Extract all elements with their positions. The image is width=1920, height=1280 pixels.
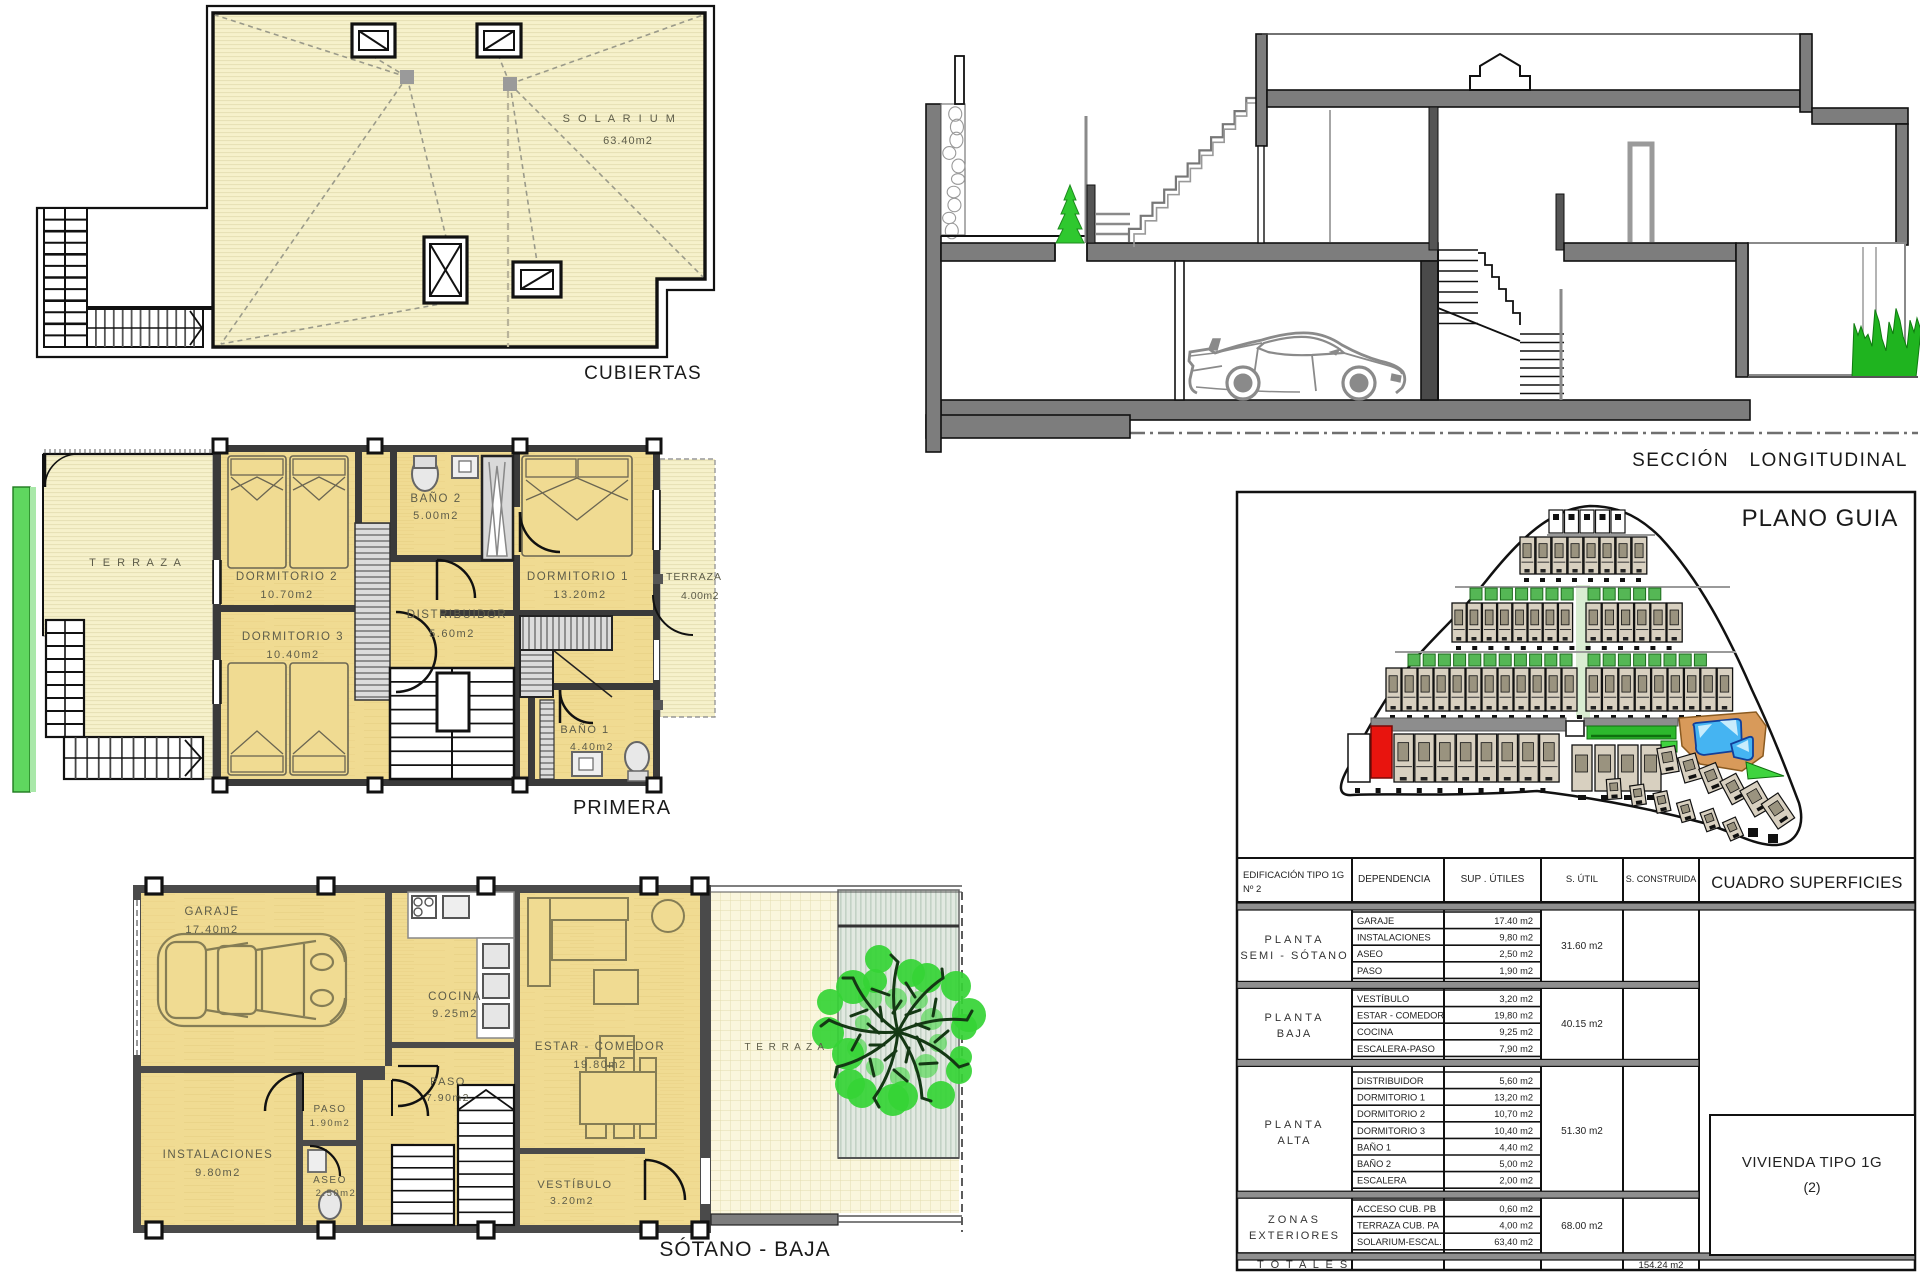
svg-text:1,90 m2: 1,90 m2 [1499, 966, 1533, 976]
svg-text:DEPENDENCIA: DEPENDENCIA [1358, 874, 1431, 885]
svg-text:5.00m2: 5.00m2 [413, 510, 459, 522]
svg-text:2,00 m2: 2,00 m2 [1499, 1176, 1533, 1186]
svg-text:GARAJE: GARAJE [1357, 916, 1394, 926]
svg-text:DISTRIBUIDOR: DISTRIBUIDOR [407, 609, 507, 621]
svg-text:PLANTA: PLANTA [1265, 934, 1325, 946]
svg-text:DORMITORIO 1: DORMITORIO 1 [1357, 1093, 1425, 1103]
svg-text:PLANO GUIA: PLANO GUIA [1742, 505, 1899, 532]
svg-text:17.40 m2: 17.40 m2 [1494, 916, 1533, 926]
svg-text:5,00 m2: 5,00 m2 [1499, 1159, 1533, 1169]
svg-text:10.70m2: 10.70m2 [260, 589, 313, 601]
svg-text:SECCIÓN LONGITUDINAL: SECCIÓN LONGITUDINAL [1632, 449, 1908, 471]
svg-text:5.60m2: 5.60m2 [429, 628, 475, 640]
svg-text:TERRAZA: TERRAZA [666, 571, 722, 583]
svg-text:9,25 m2: 9,25 m2 [1499, 1027, 1533, 1037]
svg-text:3,20 m2: 3,20 m2 [1499, 994, 1533, 1004]
svg-text:ESCALERA: ESCALERA [1357, 1176, 1407, 1186]
svg-text:T E R R A Z A: T E R R A Z A [89, 557, 183, 569]
svg-text:9,80 m2: 9,80 m2 [1499, 933, 1533, 943]
svg-text:10,70 m2: 10,70 m2 [1494, 1109, 1533, 1119]
svg-text:10.40m2: 10.40m2 [266, 649, 319, 661]
svg-text:4,00 m2: 4,00 m2 [1499, 1221, 1533, 1231]
svg-text:1.90m2: 1.90m2 [310, 1118, 351, 1129]
svg-text:ESTAR - COMEDOR: ESTAR - COMEDOR [535, 1041, 665, 1053]
svg-text:PASO: PASO [430, 1076, 466, 1088]
svg-text:DORMITORIO 3: DORMITORIO 3 [1357, 1126, 1425, 1136]
svg-text:4.00m2: 4.00m2 [681, 590, 719, 602]
svg-text:PLANTA: PLANTA [1265, 1119, 1325, 1131]
svg-text:0,60 m2: 0,60 m2 [1499, 1204, 1533, 1214]
svg-text:BAÑO 2: BAÑO 2 [410, 492, 461, 505]
svg-text:T O T A L E S: T O T A L E S [1257, 1259, 1349, 1271]
svg-text:13.20m2: 13.20m2 [553, 589, 606, 601]
svg-text:VESTÍBULO: VESTÍBULO [1357, 994, 1409, 1004]
svg-text:ALTA: ALTA [1278, 1135, 1312, 1147]
svg-text:PRIMERA: PRIMERA [573, 797, 671, 819]
svg-text:CUBIERTAS: CUBIERTAS [584, 363, 702, 384]
svg-text:10,40 m2: 10,40 m2 [1494, 1126, 1533, 1136]
svg-text:EDIFICACIÓN TIPO 1G: EDIFICACIÓN TIPO 1G [1243, 870, 1344, 881]
svg-text:4,40 m2: 4,40 m2 [1499, 1142, 1533, 1152]
svg-text:ASEO: ASEO [1357, 949, 1383, 959]
svg-text:5,60 m2: 5,60 m2 [1499, 1076, 1533, 1086]
svg-text:7.90m2: 7.90m2 [426, 1092, 470, 1104]
svg-text:INSTALACIONES: INSTALACIONES [1357, 933, 1431, 943]
svg-text:COCINA: COCINA [428, 991, 482, 1003]
svg-text:40.15 m2: 40.15 m2 [1561, 1019, 1603, 1030]
svg-text:BAÑO 1: BAÑO 1 [1357, 1142, 1391, 1152]
svg-text:4.40m2: 4.40m2 [570, 741, 614, 753]
svg-text:DORMITORIO 3: DORMITORIO 3 [242, 631, 344, 643]
svg-text:17.40m2: 17.40m2 [185, 924, 238, 936]
svg-text:S. ÚTIL: S. ÚTIL [1566, 874, 1598, 885]
svg-text:63,40 m2: 63,40 m2 [1494, 1237, 1533, 1247]
svg-text:DORMITORIO 2: DORMITORIO 2 [236, 571, 338, 583]
svg-text:T E R R A Z A: T E R R A Z A [744, 1042, 825, 1053]
svg-text:VESTÍBULO: VESTÍBULO [537, 1178, 612, 1191]
svg-text:VIVIENDA TIPO 1G: VIVIENDA TIPO 1G [1742, 1154, 1882, 1171]
svg-text:3.20m2: 3.20m2 [550, 1195, 594, 1207]
svg-text:ZONAS: ZONAS [1268, 1214, 1321, 1226]
svg-text:DISTRIBUIDOR: DISTRIBUIDOR [1357, 1076, 1424, 1086]
svg-text:13,20 m2: 13,20 m2 [1494, 1093, 1533, 1103]
svg-text:S O L A R I U M: S O L A R I U M [563, 113, 678, 125]
svg-text:Nº 2: Nº 2 [1243, 884, 1261, 895]
svg-text:EXTERIORES: EXTERIORES [1249, 1230, 1340, 1242]
svg-text:SUP . ÚTILES: SUP . ÚTILES [1461, 872, 1525, 885]
svg-text:19.80m2: 19.80m2 [573, 1059, 626, 1071]
svg-text:DORMITORIO 2: DORMITORIO 2 [1357, 1109, 1425, 1119]
svg-text:TERRAZA CUB. PA: TERRAZA CUB. PA [1357, 1221, 1440, 1231]
svg-text:COCINA: COCINA [1357, 1027, 1394, 1037]
svg-text:ASEO: ASEO [313, 1175, 347, 1186]
svg-text:ESTAR - COMEDOR: ESTAR - COMEDOR [1357, 1011, 1444, 1021]
svg-text:DORMITORIO 1: DORMITORIO 1 [527, 571, 629, 583]
svg-text:GARAJE: GARAJE [184, 906, 239, 918]
svg-text:(2): (2) [1803, 1179, 1820, 1195]
svg-text:19,80 m2: 19,80 m2 [1494, 1011, 1533, 1021]
svg-text:INSTALACIONES: INSTALACIONES [163, 1149, 274, 1161]
svg-text:PASO: PASO [313, 1104, 346, 1115]
svg-text:68.00 m2: 68.00 m2 [1561, 1221, 1603, 1232]
svg-text:9.80m2: 9.80m2 [195, 1167, 241, 1179]
svg-text:9.25m2: 9.25m2 [432, 1008, 478, 1020]
svg-text:51.30 m2: 51.30 m2 [1561, 1126, 1603, 1137]
svg-text:ACCESO CUB. PB: ACCESO CUB. PB [1357, 1204, 1436, 1214]
svg-text:SÓTANO - BAJA: SÓTANO - BAJA [659, 1238, 830, 1261]
svg-text:63.40m2: 63.40m2 [603, 135, 653, 147]
svg-text:2.50m2: 2.50m2 [316, 1188, 357, 1199]
svg-text:SOLARIUM-ESCAL.: SOLARIUM-ESCAL. [1357, 1237, 1442, 1247]
svg-text:31.60 m2: 31.60 m2 [1561, 941, 1603, 952]
svg-text:BAÑO 2: BAÑO 2 [1357, 1159, 1391, 1169]
svg-text:S. CONSTRUIDA: S. CONSTRUIDA [1626, 874, 1697, 884]
svg-text:7,90 m2: 7,90 m2 [1499, 1044, 1533, 1054]
svg-text:PASO: PASO [1357, 966, 1382, 976]
svg-text:ESCALERA-PASO: ESCALERA-PASO [1357, 1044, 1435, 1054]
svg-text:BAÑO 1: BAÑO 1 [560, 723, 609, 736]
svg-text:SEMI - SÓTANO: SEMI - SÓTANO [1240, 949, 1348, 962]
svg-text:CUADRO SUPERFICIES: CUADRO SUPERFICIES [1711, 874, 1903, 892]
svg-text:154.24 m2: 154.24 m2 [1639, 1260, 1684, 1271]
svg-text:PLANTA: PLANTA [1265, 1012, 1325, 1024]
svg-text:BAJA: BAJA [1277, 1028, 1313, 1040]
svg-text:2,50 m2: 2,50 m2 [1499, 949, 1533, 959]
